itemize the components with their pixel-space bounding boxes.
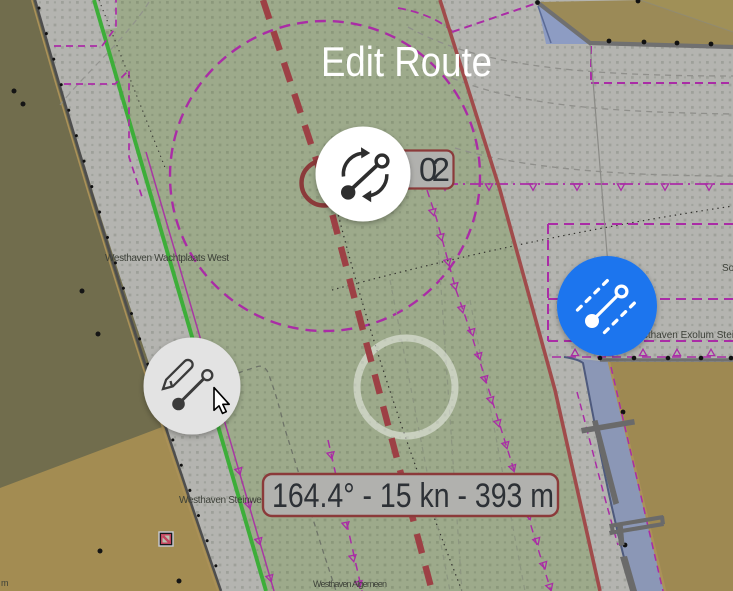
svg-text:Westhaven Wachtplaats West: Westhaven Wachtplaats West: [105, 253, 229, 264]
svg-text:02: 02: [419, 151, 450, 188]
svg-text:164.4° - 15 kn - 393 m: 164.4° - 15 kn - 393 m: [272, 477, 554, 515]
svg-text:Westhaven Algemeen: Westhaven Algemeen: [313, 579, 387, 589]
svg-text:m: m: [1, 578, 9, 588]
svg-text:Edit Route: Edit Route: [321, 38, 492, 85]
svg-text:Westhaven Steinweg: Westhaven Steinweg: [179, 495, 267, 506]
svg-text:So: So: [722, 263, 733, 274]
